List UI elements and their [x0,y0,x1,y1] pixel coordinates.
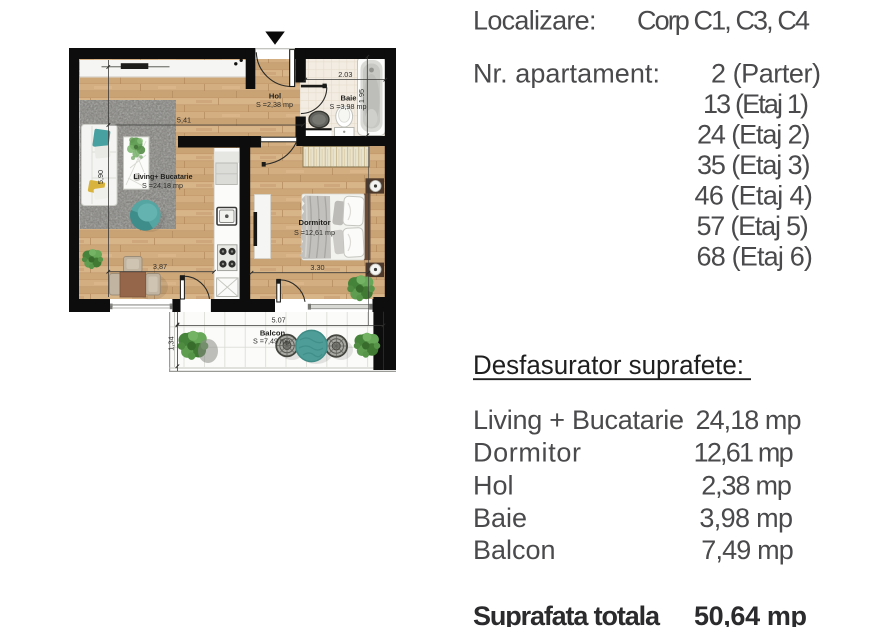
svg-text:S =12,61 mp: S =12,61 mp [294,228,335,237]
svg-text:Dormitor: Dormitor [473,438,581,468]
svg-text:Localizare:: Localizare: [473,6,597,36]
svg-text:5,90: 5,90 [96,170,105,184]
svg-text:12,61 mp: 12,61 mp [694,438,794,468]
svg-text:3,98 mp: 3,98 mp [699,503,793,533]
svg-text:1.95: 1.95 [357,89,366,103]
svg-text:2 (Parter): 2 (Parter) [711,59,821,89]
svg-text:3.30: 3.30 [310,263,324,272]
svg-text:1,34: 1,34 [166,336,175,350]
svg-text:Baie: Baie [473,503,527,533]
svg-text:57 (Etaj 5): 57 (Etaj 5) [697,211,809,241]
svg-text:24 (Etaj 2): 24 (Etaj 2) [697,120,811,150]
svg-text:50,64 mp: 50,64 mp [694,601,807,627]
svg-text:Corp C1, C3, C4: Corp C1, C3, C4 [637,6,810,36]
svg-text:Suprafata totala: Suprafata totala [473,601,661,627]
svg-text:68 (Etaj 6): 68 (Etaj 6) [697,242,813,272]
svg-text:Hol: Hol [473,471,514,501]
svg-text:35 (Etaj 3): 35 (Etaj 3) [697,150,811,180]
svg-text:3,87: 3,87 [153,262,167,271]
svg-text:5.07: 5.07 [271,315,285,324]
svg-text:Living+ Bucatarie: Living+ Bucatarie [134,172,193,181]
svg-text:Desfasurator suprafete:: Desfasurator suprafete: [473,350,744,380]
svg-text:24,18 mp: 24,18 mp [696,405,802,435]
svg-text:S =24,18 mp: S =24,18 mp [142,181,183,190]
svg-text:Living + Bucatarie: Living + Bucatarie [473,405,684,435]
svg-text:7,49 mp: 7,49 mp [701,535,794,565]
svg-text:2,38 mp: 2,38 mp [701,471,792,501]
svg-text:46 (Etaj 4): 46 (Etaj 4) [695,181,813,211]
svg-text:13 (Etaj 1): 13 (Etaj 1) [703,89,809,119]
svg-text:S =2,38 mp: S =2,38 mp [256,100,293,109]
svg-text:2.03: 2.03 [338,70,352,79]
svg-text:Balcon: Balcon [473,535,556,565]
svg-text:S =3,98 mp: S =3,98 mp [330,102,367,111]
svg-text:5,41: 5,41 [177,115,191,124]
svg-text:Nr. apartament:: Nr. apartament: [473,59,660,89]
svg-text:S =7,49 mp: S =7,49 mp [253,337,290,346]
svg-text:Dormitor: Dormitor [298,218,330,227]
